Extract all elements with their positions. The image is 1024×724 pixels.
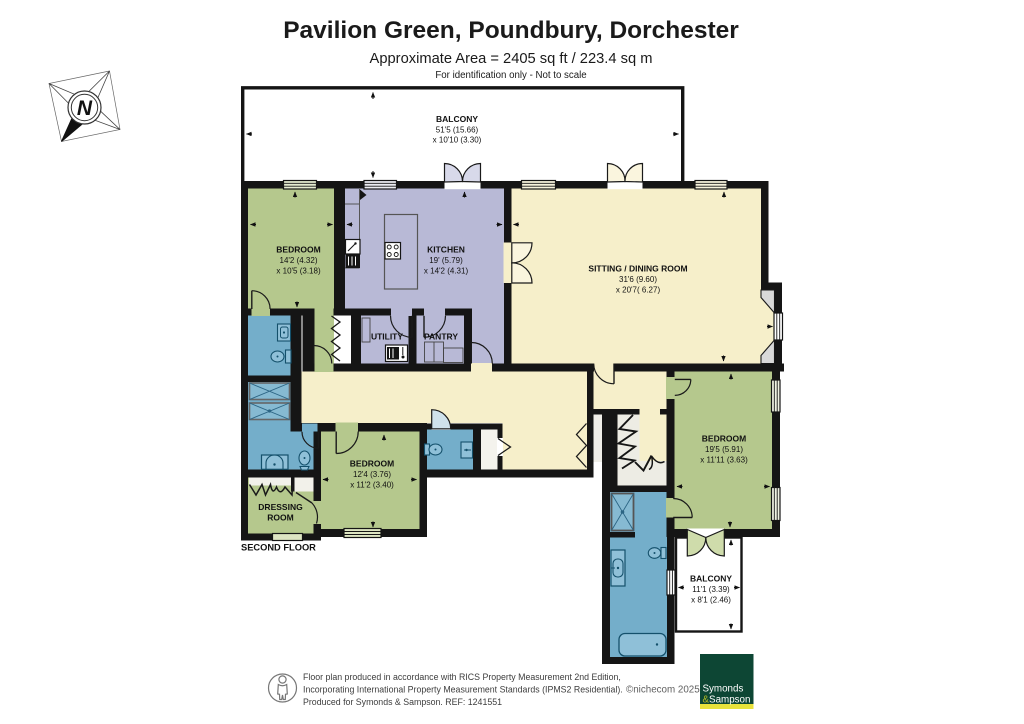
svg-text:&Sampson: &Sampson [703, 695, 751, 706]
svg-text:SITTING / DINING ROOM: SITTING / DINING ROOM [588, 264, 687, 274]
svg-text:KITCHEN: KITCHEN [427, 245, 465, 255]
svg-text:19'5 (5.91): 19'5 (5.91) [705, 445, 743, 454]
svg-text:BEDROOM: BEDROOM [702, 434, 746, 444]
svg-text:For identification only - Not: For identification only - Not to scale [435, 70, 586, 81]
svg-text:©nichecom 2025.: ©nichecom 2025. [626, 685, 702, 696]
svg-text:BALCONY: BALCONY [690, 574, 732, 584]
svg-text:BEDROOM: BEDROOM [350, 459, 394, 469]
svg-text:BALCONY: BALCONY [436, 114, 478, 124]
svg-text:SECOND FLOOR: SECOND FLOOR [241, 543, 316, 553]
svg-text:ROOM: ROOM [267, 513, 293, 523]
svg-text:Pavilion Green, Poundbury, Dor: Pavilion Green, Poundbury, Dorchester [283, 17, 739, 44]
svg-text:x 8'1 (2.46): x 8'1 (2.46) [691, 596, 731, 605]
svg-text:x 10'5 (3.18): x 10'5 (3.18) [276, 267, 321, 276]
svg-text:11'1 (3.39): 11'1 (3.39) [692, 585, 730, 594]
svg-text:x 10'10 (3.30): x 10'10 (3.30) [433, 136, 482, 145]
svg-text:UTILITY: UTILITY [371, 332, 403, 342]
svg-text:x 14'2 (4.31): x 14'2 (4.31) [424, 267, 469, 276]
svg-text:BEDROOM: BEDROOM [276, 245, 320, 255]
svg-text:51'5 (15.66): 51'5 (15.66) [436, 126, 479, 135]
svg-text:Symonds: Symonds [703, 684, 744, 695]
svg-text:x 11'2 (3.40): x 11'2 (3.40) [350, 481, 394, 490]
svg-text:N: N [77, 97, 93, 120]
svg-text:x 20'7( 6.27): x 20'7( 6.27) [616, 286, 661, 295]
svg-text:Incorporating International Pr: Incorporating International Property Mea… [303, 685, 623, 695]
svg-text:PANTRY: PANTRY [424, 332, 458, 342]
svg-text:14'2 (4.32): 14'2 (4.32) [280, 256, 318, 265]
svg-text:Floor plan produced in accorda: Floor plan produced in accordance with R… [303, 672, 621, 682]
svg-text:x 11'11 (3.63): x 11'11 (3.63) [700, 456, 748, 465]
svg-text:19' (5.79): 19' (5.79) [429, 256, 463, 265]
svg-text:Approximate Area = 2405 sq ft: Approximate Area = 2405 sq ft / 223.4 sq… [370, 51, 653, 67]
svg-text:31'6 (9.60): 31'6 (9.60) [619, 275, 657, 284]
svg-text:Produced for Symonds & Sampson: Produced for Symonds & Sampson. REF: 124… [303, 697, 502, 707]
svg-text:DRESSING: DRESSING [258, 502, 303, 512]
svg-text:12'4 (3.76): 12'4 (3.76) [353, 470, 391, 479]
